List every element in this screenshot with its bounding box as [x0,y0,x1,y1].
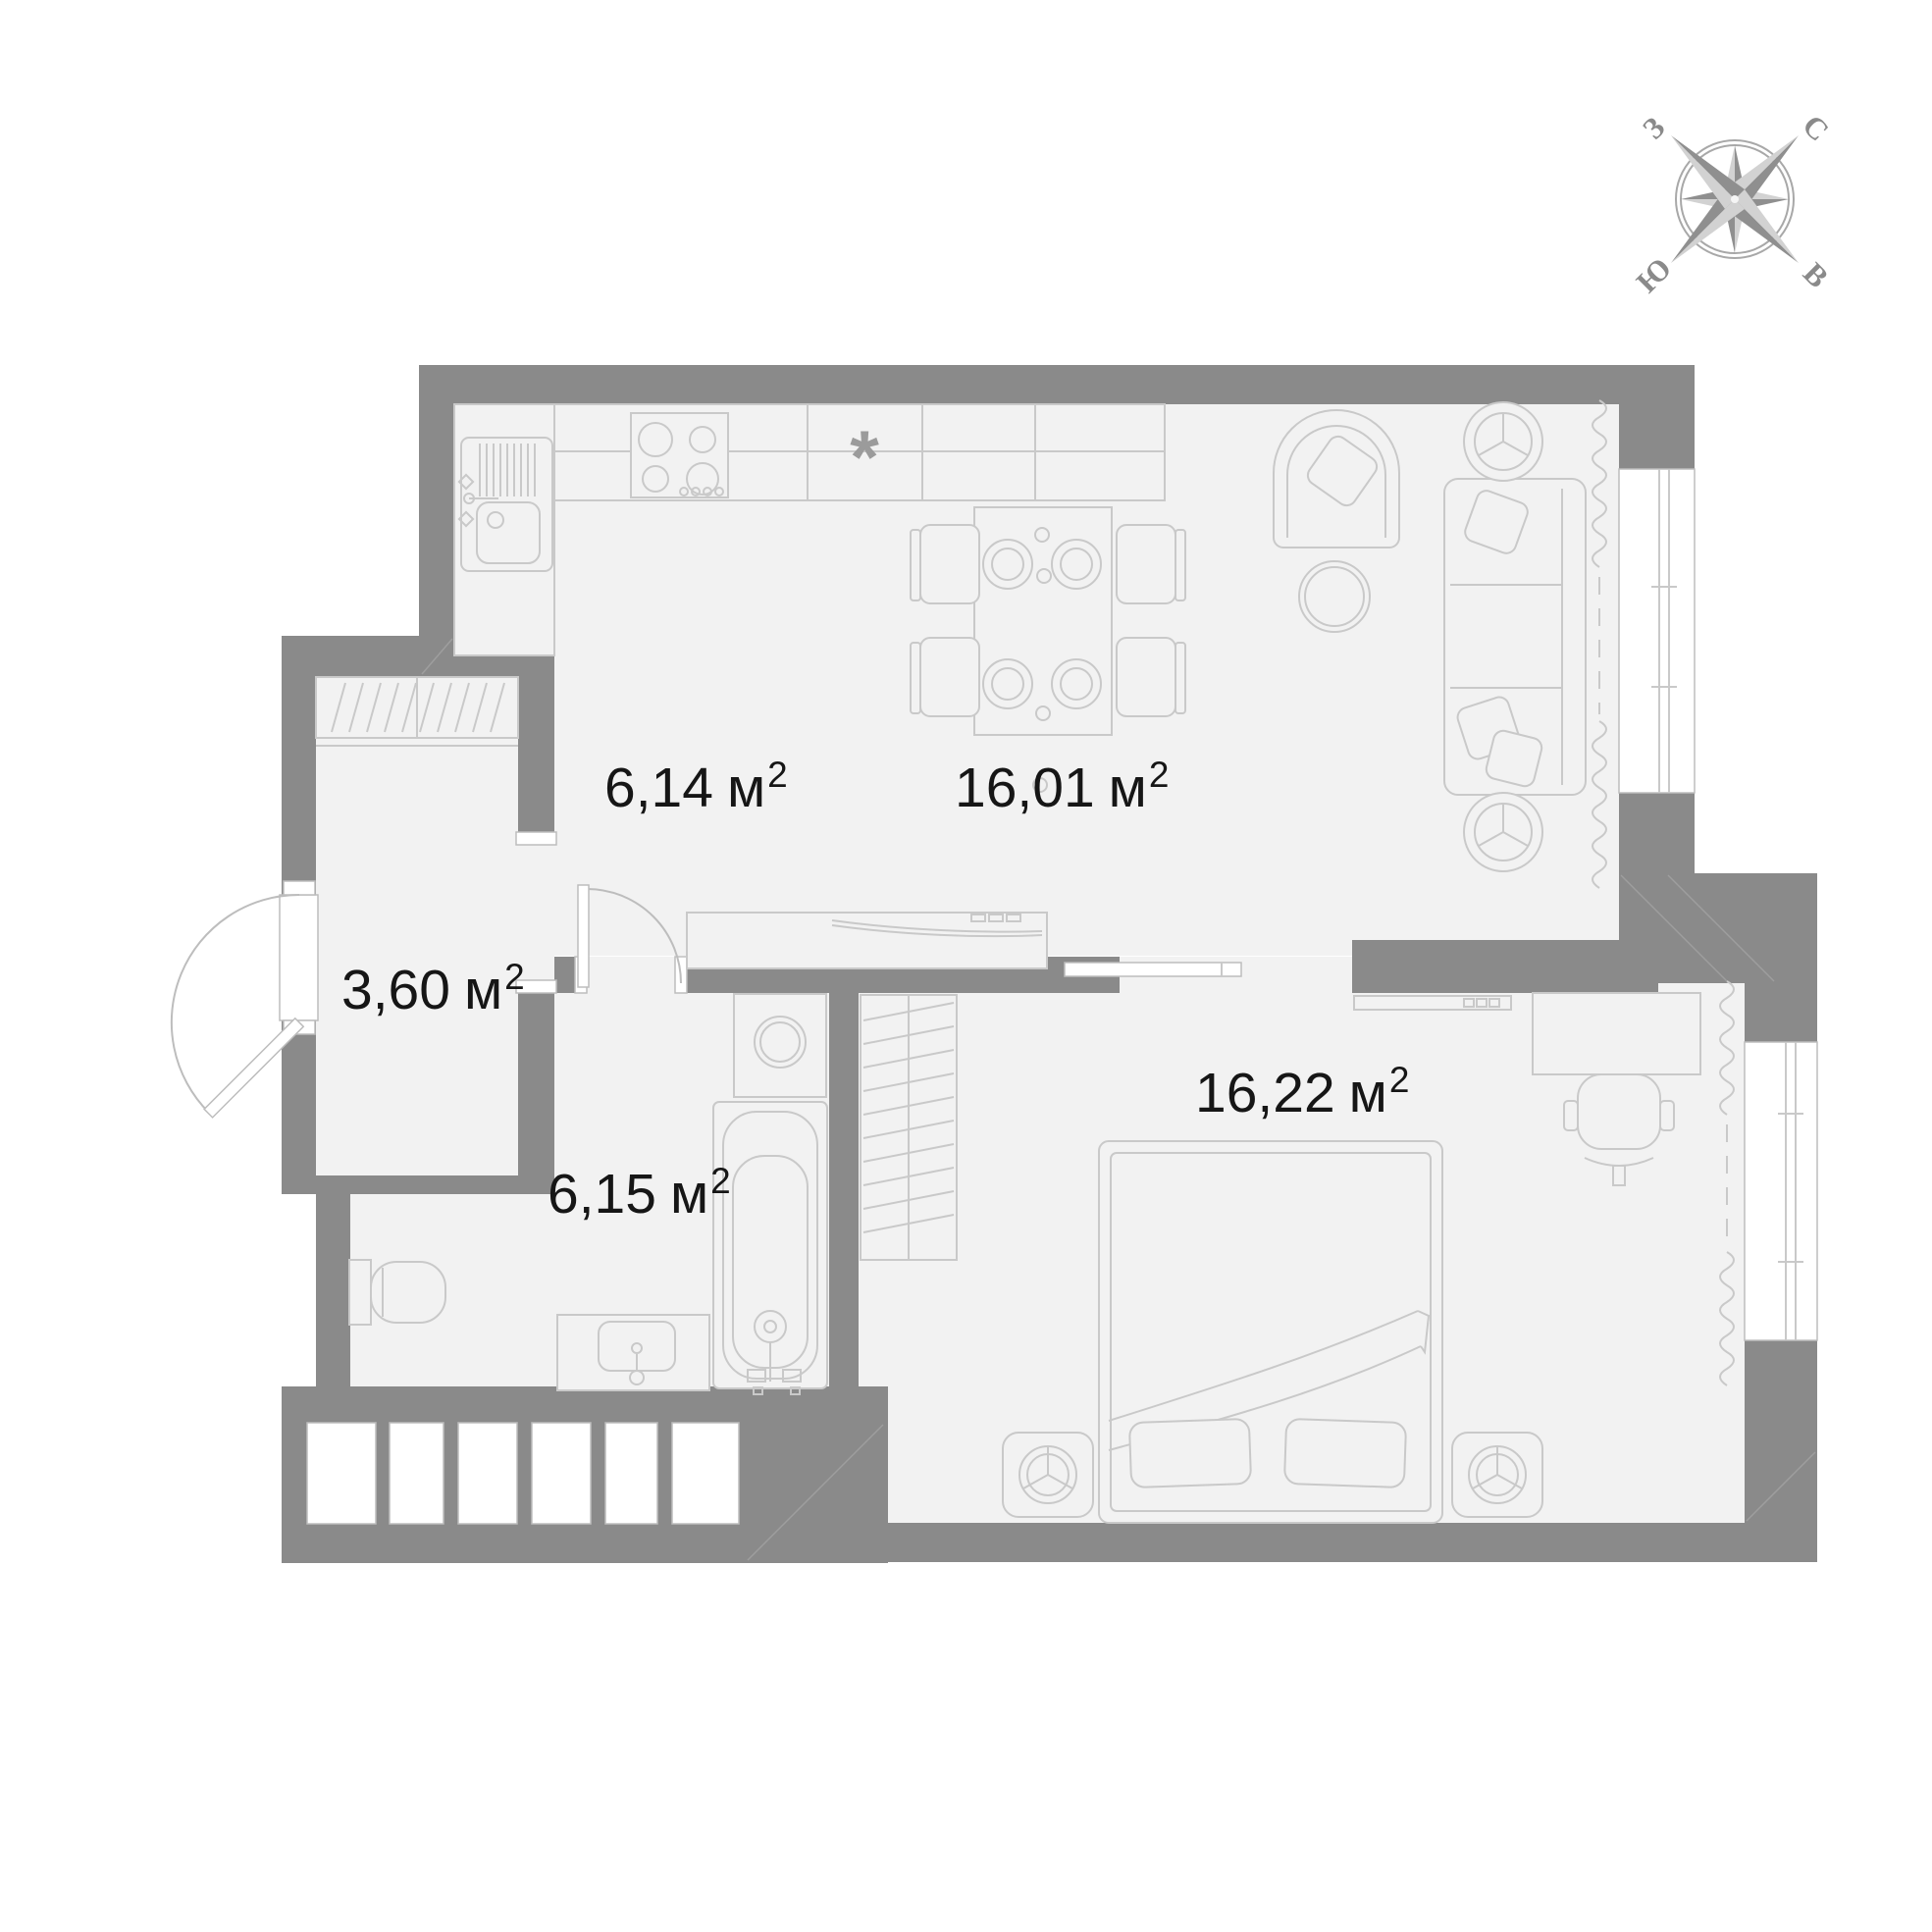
bed [1099,1141,1442,1523]
stove-hob [631,413,728,497]
washing-machine [734,994,826,1097]
speaker-top [1464,402,1542,481]
kitchen-sink [459,438,552,571]
bedroom-window [1745,1042,1817,1340]
nightstand-right [1452,1433,1542,1517]
sliding-door-leaf [1065,963,1241,976]
bathroom-vanity [557,1315,709,1390]
living-room-window [1619,469,1695,793]
compass-rose: С В Ю З [1630,108,1837,299]
tv-console [687,913,1047,968]
floor-plan-page: * [0,0,1932,1932]
desk [1533,993,1700,1074]
floor-plan-canvas: * [0,0,1932,1932]
speaker-bottom [1464,793,1542,871]
bathtub [713,1102,827,1394]
sofa-pillow [1485,729,1544,789]
bathroom-area-label: 6,15м2 [548,1161,731,1226]
bedroom-area-label: 16,22м2 [1195,1060,1409,1124]
bed-pillow [1129,1419,1251,1488]
bed-pillow [1284,1419,1406,1488]
compass-south-label: Ю [1630,251,1678,299]
refrigerator-symbol: * [850,416,879,499]
bathroom-door-leaf [578,885,589,987]
compass-west-label: З [1636,110,1671,145]
sofa [1444,479,1586,795]
armchair [1274,410,1399,548]
toilet [349,1260,445,1325]
kitchen-area-label: 6,14м2 [604,755,788,819]
bedroom-shelf [1354,996,1511,1010]
side-table [1299,561,1370,632]
living-area-label: 16,01м2 [955,755,1169,819]
hall-area-label: 3,60м2 [341,957,525,1021]
compass-north-label: С [1796,108,1836,148]
nightstand-left [1003,1433,1093,1517]
compass-east-label: В [1797,256,1835,294]
